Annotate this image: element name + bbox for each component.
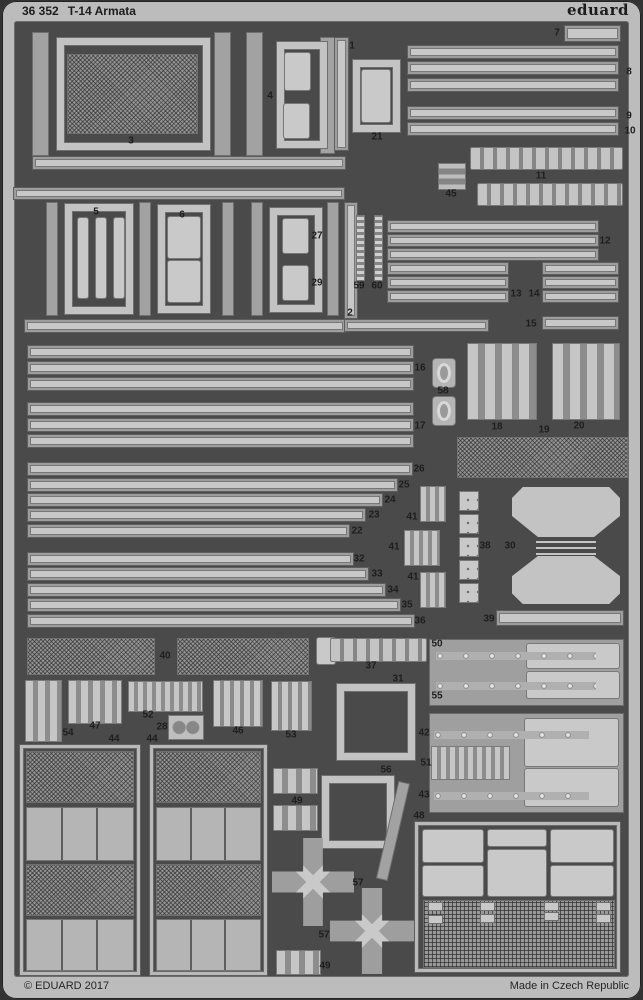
part-number-label: 9 <box>626 111 632 122</box>
part-shape-strip <box>408 46 618 58</box>
part-shape-emblem <box>438 163 466 190</box>
part-shape-gridmesh <box>423 900 615 968</box>
part-shape-ladder <box>536 539 596 555</box>
part-shape-strip <box>543 263 618 274</box>
part-shape-strip <box>28 509 365 521</box>
part-number-label: 57 <box>318 930 329 941</box>
part-shape-grommet <box>433 359 455 387</box>
part-shape-strip <box>28 525 349 537</box>
part-number-label: 51 <box>420 758 431 769</box>
part-shape-ovals <box>271 681 312 731</box>
part-number-label: 17 <box>414 421 425 432</box>
part-shape-strip <box>388 235 598 246</box>
part-shape-plate <box>488 830 546 846</box>
part-shape-plate <box>96 218 106 298</box>
part-shape-mesh <box>26 751 134 803</box>
part-number-label: 36 <box>414 616 425 627</box>
part-shape-cluster <box>273 805 318 831</box>
part-shape-ovals <box>213 680 263 727</box>
part-shape-rail <box>223 203 233 315</box>
part-number-label: 41 <box>406 512 417 523</box>
part-number-label: 16 <box>414 363 425 374</box>
part-shape-panes3 <box>156 919 261 971</box>
part-shape-strip <box>28 362 413 374</box>
part-shape-tab <box>545 903 558 910</box>
part-shape-trapdn <box>512 556 620 604</box>
part-shape-dotstrip <box>434 731 589 739</box>
part-number-label: 37 <box>365 661 376 672</box>
part-shape-panes3 <box>156 807 261 861</box>
part-number-label: 11 <box>536 171 547 182</box>
part-shape-plate <box>423 830 483 862</box>
part-number-label: 22 <box>351 526 362 537</box>
part-number-label: 56 <box>380 765 391 776</box>
part-shape-strip <box>388 291 508 302</box>
part-shape-tab <box>597 915 610 922</box>
part-number-label: 41 <box>388 542 399 553</box>
part-shape-tab <box>429 916 442 923</box>
part-number-label: 4 <box>267 91 273 102</box>
part-number-label: 18 <box>491 422 502 433</box>
part-number-label: 14 <box>528 289 539 300</box>
part-shape-rail <box>328 203 338 315</box>
part-number-label: 46 <box>232 726 243 737</box>
part-shape-strip <box>388 277 508 288</box>
part-shape-mesh <box>156 864 261 916</box>
part-shape-combs <box>467 343 537 420</box>
part-number-label: 1 <box>349 41 355 52</box>
part-number-label: 44 <box>108 734 119 745</box>
part-shape-plate <box>283 266 308 300</box>
part-shape-plate <box>551 866 613 896</box>
part-number-label: 44 <box>146 734 157 745</box>
part-shape-plate <box>362 70 390 122</box>
part-shape-strip <box>335 38 348 150</box>
part-shape-frame <box>322 776 394 848</box>
part-shape-plate <box>168 261 200 302</box>
part-shape-tab <box>481 903 494 910</box>
part-shape-panes3 <box>26 807 134 861</box>
part-number-label: 13 <box>510 289 521 300</box>
part-shape-plate <box>488 850 546 896</box>
part-shape-strip <box>28 378 413 390</box>
part-shape-tab <box>597 903 610 910</box>
part-shape-strip <box>408 62 618 74</box>
part-number-label: 47 <box>89 721 100 732</box>
part-shape-plate <box>525 719 618 766</box>
part-shape-strip <box>28 584 385 596</box>
part-number-label: 49 <box>319 961 330 972</box>
part-shape-slats <box>68 680 122 724</box>
part-number-label: 39 <box>483 614 494 625</box>
part-number-label: 2 <box>347 308 353 319</box>
part-number-label: 50 <box>431 639 442 650</box>
part-shape-cluster <box>276 950 321 975</box>
part-number-label: 35 <box>401 600 412 611</box>
parts-layer: 1234567891011121314151617181920212223242… <box>0 0 643 1000</box>
part-number-label: 21 <box>371 132 382 143</box>
pe-fret-sheet: 36 352 T-14 Armata eduard © EDUARD 2017 … <box>0 0 643 1000</box>
part-number-label: 59 <box>353 281 364 292</box>
part-shape-plate <box>284 104 309 138</box>
part-shape-dotstrip <box>434 792 589 800</box>
part-number-label: 42 <box>418 728 429 739</box>
part-number-label: 34 <box>387 585 398 596</box>
part-shape-bottles <box>477 183 623 206</box>
part-shape-chain <box>356 215 365 281</box>
part-shape-plate <box>78 218 88 298</box>
part-shape-strip <box>388 249 598 260</box>
part-shape-strip <box>388 263 508 274</box>
part-shape-strip <box>345 320 488 331</box>
part-shape-plate <box>423 866 483 896</box>
part-number-label: 57 <box>352 878 363 889</box>
part-shape-strip <box>28 615 414 627</box>
part-shape-strip <box>408 79 618 91</box>
part-number-label: 48 <box>413 811 424 822</box>
part-number-label: 10 <box>624 126 635 137</box>
part-number-label: 19 <box>538 425 549 436</box>
part-shape-strip <box>28 568 368 580</box>
part-shape-strip <box>388 221 598 232</box>
part-shape-rail <box>33 33 48 155</box>
part-shape-plate <box>283 219 308 253</box>
part-shape-spider <box>272 838 354 926</box>
part-number-label: 52 <box>142 710 153 721</box>
part-shape-pins <box>420 486 446 522</box>
part-shape-strip <box>28 403 413 415</box>
part-shape-dotstrip <box>436 682 596 690</box>
part-shape-pins <box>420 572 446 608</box>
part-shape-strip <box>543 291 618 302</box>
part-shape-plate <box>525 769 618 806</box>
part-number-label: 55 <box>431 691 442 702</box>
part-shape-mesh <box>156 751 261 803</box>
part-number-label: 28 <box>156 722 167 733</box>
part-shape-bottles <box>470 147 623 170</box>
part-shape-strip <box>543 277 618 288</box>
part-number-label: 15 <box>525 319 536 330</box>
part-shape-trapup <box>512 487 620 537</box>
part-shape-pins <box>431 746 510 780</box>
part-number-label: 3 <box>128 136 134 147</box>
part-shape-chain <box>374 215 383 281</box>
part-number-label: 31 <box>392 674 403 685</box>
part-shape-strip <box>28 435 413 447</box>
part-number-label: 49 <box>291 796 302 807</box>
part-number-label: 6 <box>179 210 185 221</box>
part-shape-pins <box>128 681 203 712</box>
part-shape-strip <box>28 479 397 491</box>
part-shape-plate <box>551 830 613 862</box>
part-shape-mesh <box>177 638 309 675</box>
part-shape-strip <box>28 494 382 506</box>
part-shape-strip <box>28 599 400 611</box>
part-number-label: 20 <box>573 421 584 432</box>
part-shape-slats <box>25 680 62 742</box>
part-shape-tab <box>545 913 558 920</box>
part-shape-strip <box>543 317 618 329</box>
part-shape-cluster <box>273 768 318 794</box>
part-number-label: 27 <box>311 231 322 242</box>
part-number-label: 8 <box>626 67 632 78</box>
part-shape-spider <box>330 888 414 974</box>
part-shape-combs <box>552 343 620 420</box>
part-shape-mesh <box>67 54 198 134</box>
part-number-label: 53 <box>285 730 296 741</box>
part-shape-strip <box>28 419 413 431</box>
part-shape-padsq <box>460 492 478 510</box>
part-number-label: 33 <box>371 569 382 580</box>
part-shape-plate <box>114 218 124 298</box>
part-shape-rail <box>140 203 150 315</box>
part-shape-strip <box>497 611 623 625</box>
part-shape-rail <box>247 33 262 155</box>
part-shape-padsq <box>460 515 478 533</box>
part-shape-strip <box>28 553 353 565</box>
part-shape-strip <box>28 346 413 358</box>
part-shape-rail <box>215 33 230 155</box>
part-number-label: 23 <box>368 510 379 521</box>
part-number-label: 41 <box>407 572 418 583</box>
part-number-label: 30 <box>504 541 515 552</box>
part-shape-padsq <box>460 538 478 556</box>
part-number-label: 24 <box>384 495 395 506</box>
part-shape-grommet <box>433 397 455 425</box>
part-shape-padsq <box>460 561 478 579</box>
part-shape-frame <box>337 684 415 760</box>
part-shape-panes3 <box>26 919 134 971</box>
part-number-label: 7 <box>554 28 560 39</box>
part-number-label: 60 <box>371 281 382 292</box>
part-shape-bottles <box>330 638 427 662</box>
part-shape-strip <box>33 157 345 169</box>
part-shape-mesh <box>457 437 628 478</box>
part-shape-mesh <box>26 864 134 916</box>
part-shape-rail <box>252 203 262 315</box>
part-shape-strip <box>25 320 345 332</box>
part-shape-plate <box>168 217 200 258</box>
part-number-label: 45 <box>445 189 456 200</box>
part-shape-rail <box>47 203 57 315</box>
part-shape-tab <box>429 903 442 910</box>
part-shape-strip <box>28 463 412 475</box>
part-number-label: 25 <box>398 480 409 491</box>
part-shape-pins <box>404 530 440 566</box>
part-number-label: 43 <box>418 790 429 801</box>
part-number-label: 26 <box>413 464 424 475</box>
part-number-label: 58 <box>437 386 448 397</box>
part-number-label: 40 <box>159 651 170 662</box>
part-number-label: 32 <box>353 554 364 565</box>
part-shape-dotstrip <box>436 652 596 660</box>
part-number-label: 5 <box>93 207 99 218</box>
part-number-label: 54 <box>62 728 73 739</box>
part-number-label: 29 <box>311 278 322 289</box>
part-shape-strip <box>565 26 620 41</box>
part-shape-strip <box>14 188 344 199</box>
part-number-label: 38 <box>479 541 490 552</box>
part-shape-tab <box>481 915 494 922</box>
part-shape-padsq <box>460 584 478 602</box>
part-shape-plate <box>285 53 310 90</box>
part-number-label: 12 <box>599 236 610 247</box>
part-shape-gears <box>169 716 203 739</box>
part-shape-strip <box>408 123 618 135</box>
part-shape-mesh <box>27 638 155 675</box>
part-shape-strip <box>408 107 618 119</box>
